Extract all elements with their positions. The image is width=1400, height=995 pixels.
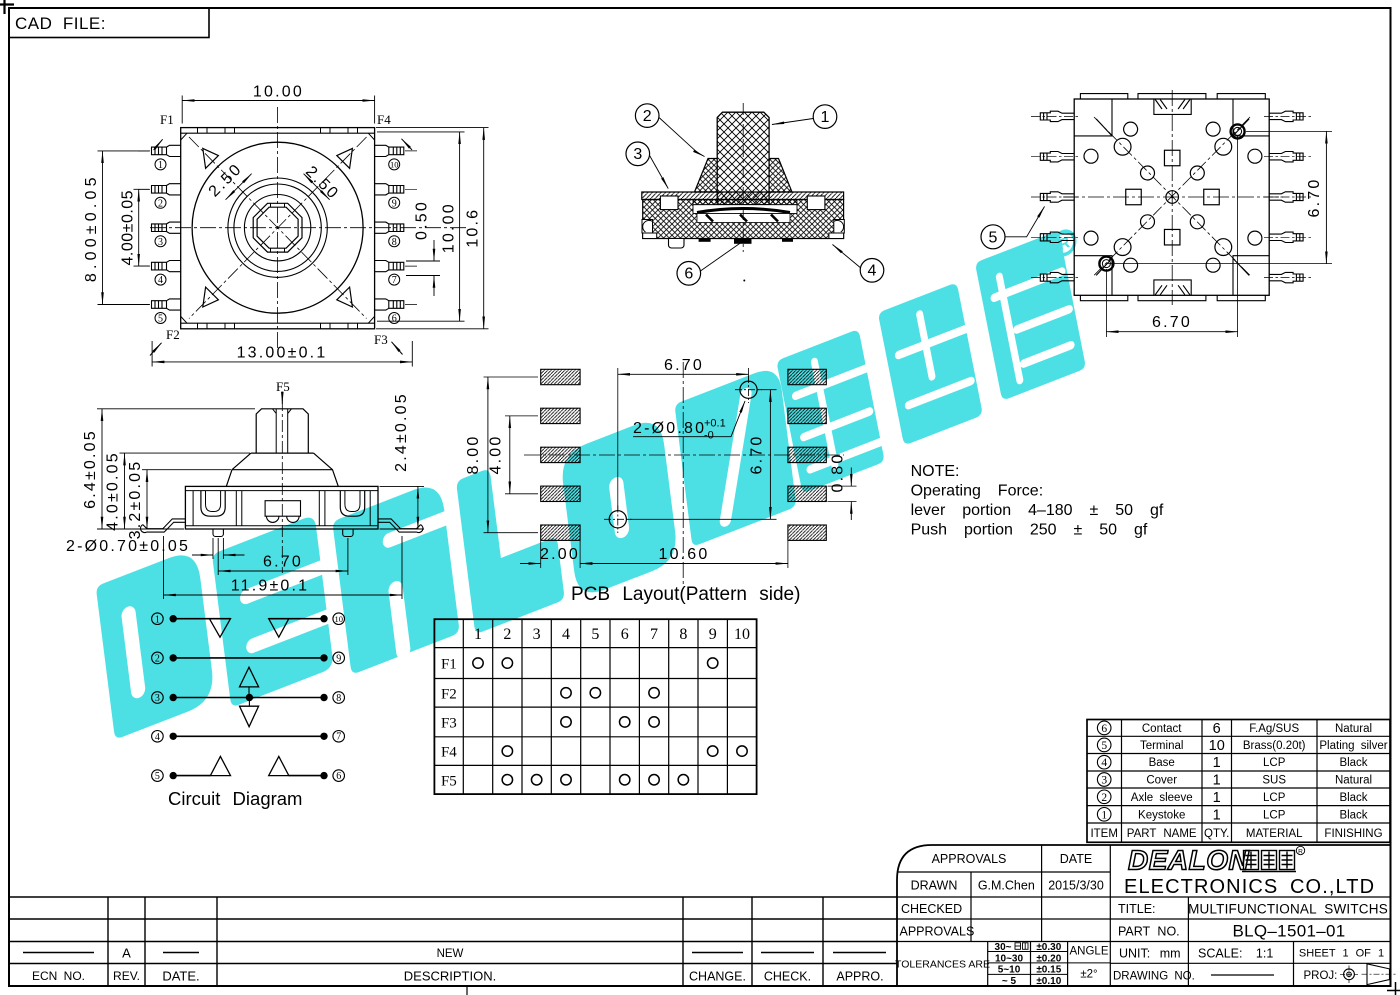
svg-text:1: 1 xyxy=(474,626,482,643)
svg-text:BLQ–1501–01: BLQ–1501–01 xyxy=(1233,922,1346,941)
svg-text:6.70: 6.70 xyxy=(664,357,704,374)
svg-text:LCP: LCP xyxy=(1263,757,1286,769)
svg-text:-0: -0 xyxy=(704,430,714,442)
svg-text:LCP: LCP xyxy=(1263,809,1286,821)
svg-text:2.4±0.05: 2.4±0.05 xyxy=(393,392,410,472)
svg-text:±0.15: ±0.15 xyxy=(1036,965,1061,976)
svg-text:ELECTRONICS CO.,LTD: ELECTRONICS CO.,LTD xyxy=(1124,876,1375,898)
svg-text:F1: F1 xyxy=(160,112,174,127)
svg-text:11.9±0.1: 11.9±0.1 xyxy=(231,578,310,595)
svg-text:0.50: 0.50 xyxy=(414,200,431,240)
svg-text:3.2±0.05: 3.2±0.05 xyxy=(127,460,144,540)
svg-text:Brass(0.20t): Brass(0.20t) xyxy=(1243,740,1306,752)
svg-text:7: 7 xyxy=(392,275,397,286)
svg-text:±0.20: ±0.20 xyxy=(1036,953,1061,964)
svg-text:A: A xyxy=(122,946,131,961)
svg-text:Contact: Contact xyxy=(1142,723,1182,735)
svg-text:F5: F5 xyxy=(276,379,290,394)
svg-text:MATERIAL: MATERIAL xyxy=(1246,828,1303,840)
svg-text:3: 3 xyxy=(633,146,642,163)
svg-text:6.70: 6.70 xyxy=(263,554,303,571)
svg-text:5~10: 5~10 xyxy=(998,965,1021,976)
svg-text:2: 2 xyxy=(158,198,163,209)
svg-text:9: 9 xyxy=(336,653,341,664)
svg-text:F1: F1 xyxy=(441,657,457,673)
svg-text:10.60: 10.60 xyxy=(658,546,709,563)
svg-text:F3: F3 xyxy=(441,715,457,731)
svg-text:10.6: 10.6 xyxy=(465,208,482,248)
svg-text:Black: Black xyxy=(1339,792,1367,804)
svg-text:2.00: 2.00 xyxy=(540,546,580,563)
svg-text:8: 8 xyxy=(392,237,397,248)
svg-text:PART NAME: PART NAME xyxy=(1127,828,1197,840)
svg-text:1: 1 xyxy=(158,160,163,171)
svg-text:DRAWN: DRAWN xyxy=(911,879,958,893)
svg-text:4.00: 4.00 xyxy=(488,435,505,475)
svg-text:4: 4 xyxy=(155,732,160,743)
svg-text:2: 2 xyxy=(1101,792,1107,804)
svg-text:9: 9 xyxy=(392,198,397,209)
svg-text:NOTE:: NOTE: xyxy=(911,463,960,480)
svg-text:DRAWING NO.: DRAWING NO. xyxy=(1113,971,1195,983)
svg-text:F3: F3 xyxy=(374,332,388,347)
svg-text:ECN NO.: ECN NO. xyxy=(32,969,85,983)
svg-text:6: 6 xyxy=(1101,723,1107,735)
svg-text:4: 4 xyxy=(562,626,570,643)
svg-text:Black: Black xyxy=(1339,757,1367,769)
svg-text:SCALE: 1:1: SCALE: 1:1 xyxy=(1198,947,1273,961)
svg-text:PCB Layout(Pattern side): PCB Layout(Pattern side) xyxy=(571,584,800,605)
svg-text:Cover: Cover xyxy=(1146,775,1177,787)
svg-text:5: 5 xyxy=(1101,740,1107,752)
svg-text:+0.1: +0.1 xyxy=(704,418,726,430)
svg-text:ITEM: ITEM xyxy=(1090,828,1117,840)
svg-text:2: 2 xyxy=(155,654,160,665)
svg-text:5: 5 xyxy=(158,314,163,325)
svg-text:APPROVALS: APPROVALS xyxy=(900,925,975,939)
svg-text:±0.10: ±0.10 xyxy=(1036,976,1061,987)
svg-text:6: 6 xyxy=(684,266,693,283)
svg-text:Black: Black xyxy=(1339,809,1367,821)
svg-text:F2: F2 xyxy=(166,327,180,342)
svg-text:4.0±0.05: 4.0±0.05 xyxy=(105,451,122,531)
svg-text:APPRO.: APPRO. xyxy=(836,970,883,984)
svg-text:ANGLE: ANGLE xyxy=(1070,946,1109,958)
svg-text:±0.30: ±0.30 xyxy=(1036,942,1061,953)
svg-text:2-Ø0.80: 2-Ø0.80 xyxy=(633,420,706,437)
svg-text:4: 4 xyxy=(158,275,163,286)
svg-text:±2°: ±2° xyxy=(1080,969,1097,981)
svg-text:0.80: 0.80 xyxy=(830,453,847,493)
svg-text:4.00±0.05: 4.00±0.05 xyxy=(120,190,137,266)
svg-text:2-Ø0.70±0.05: 2-Ø0.70±0.05 xyxy=(66,538,190,555)
svg-text:Terminal: Terminal xyxy=(1140,740,1183,752)
svg-text:8.00±0.05: 8.00±0.05 xyxy=(83,173,100,282)
svg-text:4: 4 xyxy=(868,263,877,280)
svg-text:8: 8 xyxy=(679,626,687,643)
svg-text:9: 9 xyxy=(709,626,717,643)
svg-text:TITLE:: TITLE: xyxy=(1118,902,1156,916)
svg-text:1: 1 xyxy=(1101,809,1107,821)
svg-text:LCP: LCP xyxy=(1263,792,1286,804)
svg-text:Base: Base xyxy=(1149,757,1175,769)
svg-text:2015/3/30: 2015/3/30 xyxy=(1048,879,1104,893)
svg-text:6.70: 6.70 xyxy=(1306,178,1323,218)
svg-text:30~: 30~ xyxy=(995,942,1012,953)
svg-text:1: 1 xyxy=(1213,755,1221,771)
svg-text:13.00±0.1: 13.00±0.1 xyxy=(237,345,328,362)
svg-text:4: 4 xyxy=(1101,757,1107,769)
svg-text:PART NO.: PART NO. xyxy=(1118,925,1180,939)
svg-text:8: 8 xyxy=(336,693,341,704)
svg-text:SHEET 1 OF 1: SHEET 1 OF 1 xyxy=(1299,948,1384,960)
svg-text:7: 7 xyxy=(336,732,341,743)
svg-text:F2: F2 xyxy=(441,686,457,702)
svg-text:6: 6 xyxy=(392,314,397,325)
svg-text:NEW: NEW xyxy=(437,948,464,960)
svg-text:QTY.: QTY. xyxy=(1204,828,1229,840)
svg-text:6.70: 6.70 xyxy=(1152,314,1192,331)
svg-text:CHANGE.: CHANGE. xyxy=(689,970,746,984)
svg-text:PROJ:: PROJ: xyxy=(1304,970,1338,982)
svg-text:DEALON: DEALON xyxy=(1128,845,1250,876)
svg-text:FINISHING: FINISHING xyxy=(1324,828,1382,840)
svg-text:10: 10 xyxy=(334,614,343,624)
svg-text:TOLERANCES ARE: TOLERANCES ARE xyxy=(895,959,990,971)
svg-text:DESCRIPTION.: DESCRIPTION. xyxy=(404,969,496,984)
svg-text:MULTIFUNCTIONAL SWITCHS: MULTIFUNCTIONAL SWITCHS xyxy=(1188,902,1388,917)
svg-text:Keystoke: Keystoke xyxy=(1138,809,1185,821)
svg-text:lever portion 4–180 ± 50 gf: lever portion 4–180 ± 50 gf xyxy=(911,502,1164,519)
svg-text:1: 1 xyxy=(1213,790,1221,806)
svg-text:F5: F5 xyxy=(441,773,457,789)
svg-text:10: 10 xyxy=(734,626,750,643)
svg-text:10: 10 xyxy=(1209,738,1225,754)
svg-text:F4: F4 xyxy=(377,112,391,127)
svg-text:5: 5 xyxy=(591,626,599,643)
svg-text:REV.: REV. xyxy=(113,969,140,983)
svg-text:10: 10 xyxy=(390,160,399,170)
svg-text:1: 1 xyxy=(155,614,160,625)
svg-text:Axle sleeve: Axle sleeve xyxy=(1131,792,1193,804)
svg-text:1: 1 xyxy=(1213,773,1221,789)
svg-text:1: 1 xyxy=(821,109,830,126)
svg-text:UNIT: mm: UNIT: mm xyxy=(1119,947,1181,961)
svg-text:CHECK.: CHECK. xyxy=(764,970,811,984)
svg-text:2: 2 xyxy=(503,626,511,643)
svg-text:10.00: 10.00 xyxy=(441,202,458,253)
svg-text:2: 2 xyxy=(643,108,652,125)
svg-text:DATE.: DATE. xyxy=(162,969,199,984)
svg-text:CAD FILE:: CAD FILE: xyxy=(15,14,106,33)
svg-text:6: 6 xyxy=(621,626,629,643)
svg-text:3: 3 xyxy=(1101,775,1107,787)
svg-text:CHECKED: CHECKED xyxy=(901,902,962,916)
svg-text:6.70: 6.70 xyxy=(749,435,766,475)
svg-text:F4: F4 xyxy=(441,745,457,761)
svg-text:3: 3 xyxy=(155,693,160,704)
svg-text:10.00: 10.00 xyxy=(253,84,304,101)
svg-text:Push portion 250 ± 50 gf: Push portion 250 ± 50 gf xyxy=(911,522,1148,539)
svg-text:6: 6 xyxy=(1213,721,1221,737)
svg-text:Operating Force:: Operating Force: xyxy=(911,483,1044,500)
svg-text:~ 5: ~ 5 xyxy=(1002,976,1017,987)
svg-text:7: 7 xyxy=(650,626,658,643)
svg-text:APPROVALS: APPROVALS xyxy=(932,852,1007,866)
svg-text:3: 3 xyxy=(533,626,541,643)
svg-text:R: R xyxy=(1298,849,1303,856)
svg-text:DATE: DATE xyxy=(1060,852,1092,866)
svg-text:Plating silver: Plating silver xyxy=(1319,740,1387,752)
svg-text:6.4±0.05: 6.4±0.05 xyxy=(82,429,99,509)
svg-text:1: 1 xyxy=(1213,807,1221,823)
svg-text:F.Ag/SUS: F.Ag/SUS xyxy=(1249,723,1299,735)
svg-text:5: 5 xyxy=(989,229,998,246)
svg-text:6: 6 xyxy=(336,771,341,782)
svg-text:8.00: 8.00 xyxy=(465,435,482,475)
svg-text:Circuit Diagram: Circuit Diagram xyxy=(168,788,302,809)
svg-text:Natural: Natural xyxy=(1335,775,1372,787)
svg-text:3: 3 xyxy=(158,237,163,248)
svg-text:G.M.Chen: G.M.Chen xyxy=(978,879,1035,893)
svg-text:5: 5 xyxy=(155,771,160,782)
svg-text:Natural: Natural xyxy=(1335,723,1372,735)
svg-text:SUS: SUS xyxy=(1262,775,1286,787)
svg-text:10~30: 10~30 xyxy=(995,953,1024,964)
